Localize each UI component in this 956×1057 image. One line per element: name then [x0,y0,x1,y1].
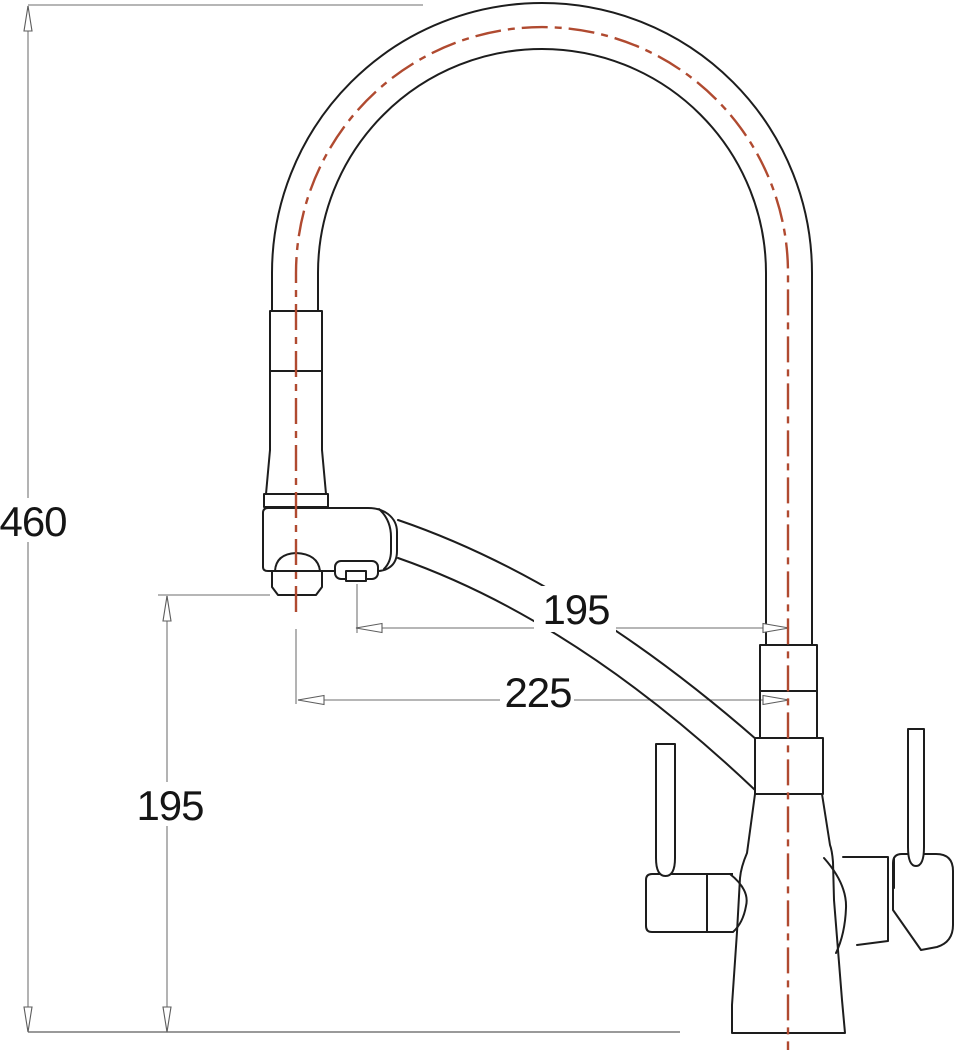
pullout-hose [398,520,757,790]
left-handle-housing [646,874,733,932]
spray-head [263,311,397,595]
faucet-technical-drawing: 460 195 195 225 [0,0,956,1057]
arrow-left-225 [298,696,324,705]
outlet-height-label: 195 [136,782,203,829]
aerator-tip [346,571,366,581]
right-housing-plate [843,857,894,945]
left-handle [646,744,747,932]
left-handle-lever [656,744,675,876]
arrow-down-195v [163,1007,171,1032]
aerator-reach-label: 195 [542,586,609,633]
right-handle [824,729,953,953]
arrow-right-195h [763,624,789,633]
arrow-up-460 [24,6,32,31]
hose-sleeve [270,311,322,450]
right-handle-housing [893,854,953,950]
arrow-up-195v [163,596,171,621]
arrow-down-460 [24,1007,32,1032]
arrow-left-195h [356,624,382,633]
arrow-right-225 [763,696,789,705]
spray-head-body [263,508,397,571]
overall-height-label: 460 [0,498,67,545]
right-handle-lever [908,729,924,866]
drawing-canvas: 460 195 195 225 [0,0,956,1057]
spout-reach-label: 225 [504,669,571,716]
faucet-outline [263,3,953,1033]
